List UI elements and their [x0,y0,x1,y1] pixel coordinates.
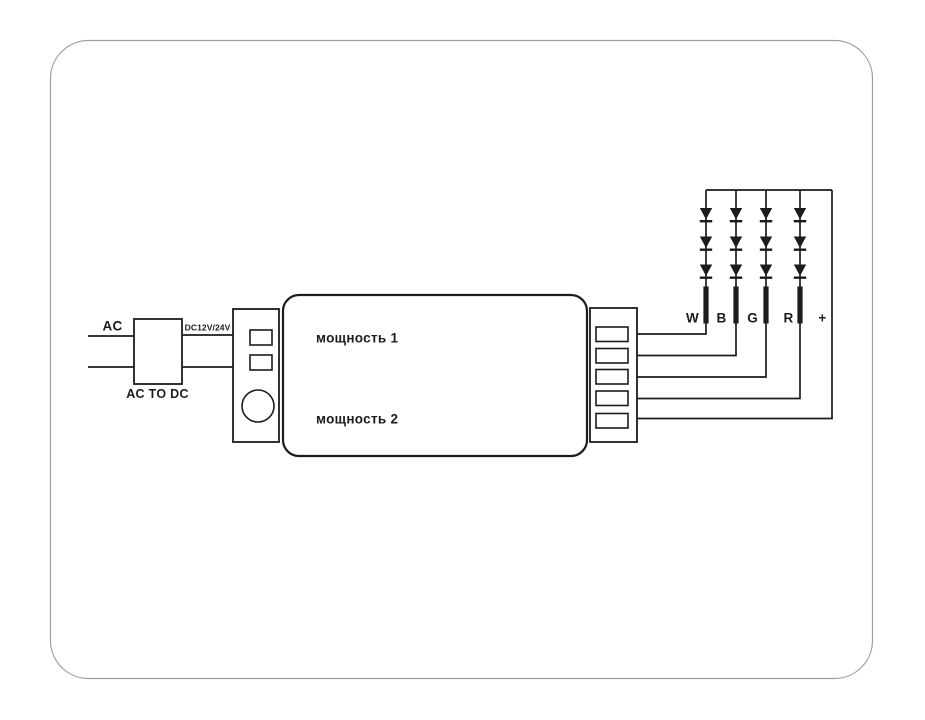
strip-pin-r [797,287,802,324]
channel-b-label: B [716,311,726,326]
voltage-label: DC12V/24V [185,323,231,333]
output-terminal-1 [596,327,628,342]
controller-output-module [590,308,637,442]
converter-label: AC TO DC [126,387,189,401]
channel-plus-label: + [818,311,826,326]
round-button [242,390,274,422]
input-terminal-1 [250,330,272,345]
channel-w-label: W [686,311,699,326]
power2-label: мощность 2 [316,412,398,427]
output-terminal-3 [596,370,628,385]
output-terminal-4 [596,391,628,406]
output-terminal-5 [596,414,628,429]
strip-pin-g [763,287,768,324]
wiring-diagram-page: AC AC TO DC DC12V/24V мощность 1 мощност… [0,0,925,720]
strip-pin-w [703,287,708,324]
channel-r-label: R [783,311,793,326]
input-terminal-2 [250,355,272,370]
controller-input-module [233,309,279,442]
ac-to-dc-converter-box [134,319,182,384]
power1-label: мощность 1 [316,331,399,346]
output-terminal-2 [596,349,628,364]
strip-pin-b [733,287,738,324]
ac-label: AC [102,319,122,334]
controller-body [283,295,587,456]
channel-g-label: G [747,311,758,326]
wiring-diagram-canvas: AC AC TO DC DC12V/24V мощность 1 мощност… [0,0,925,720]
